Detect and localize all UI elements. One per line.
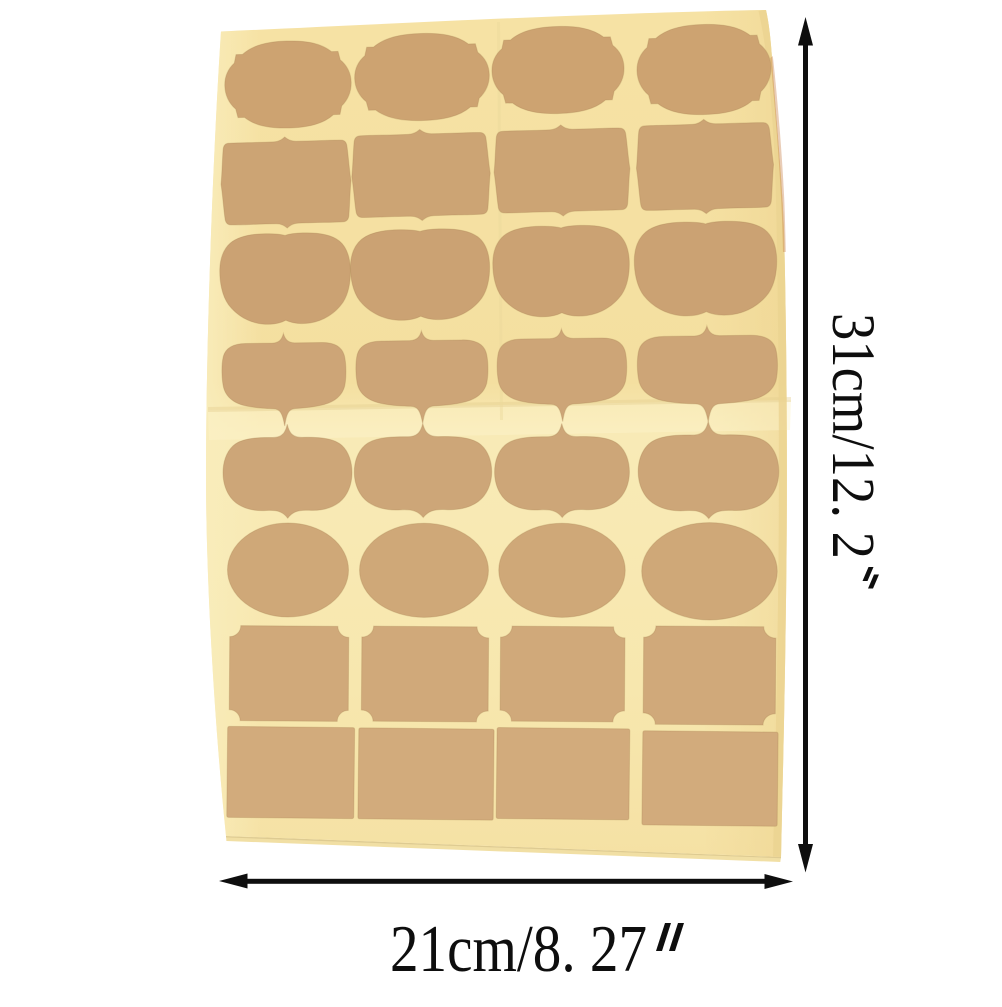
svg-text:31cm/12. 2: 31cm/12. 2 xyxy=(819,313,886,559)
svg-text:21cm/8. 27: 21cm/8. 27 xyxy=(390,912,647,986)
